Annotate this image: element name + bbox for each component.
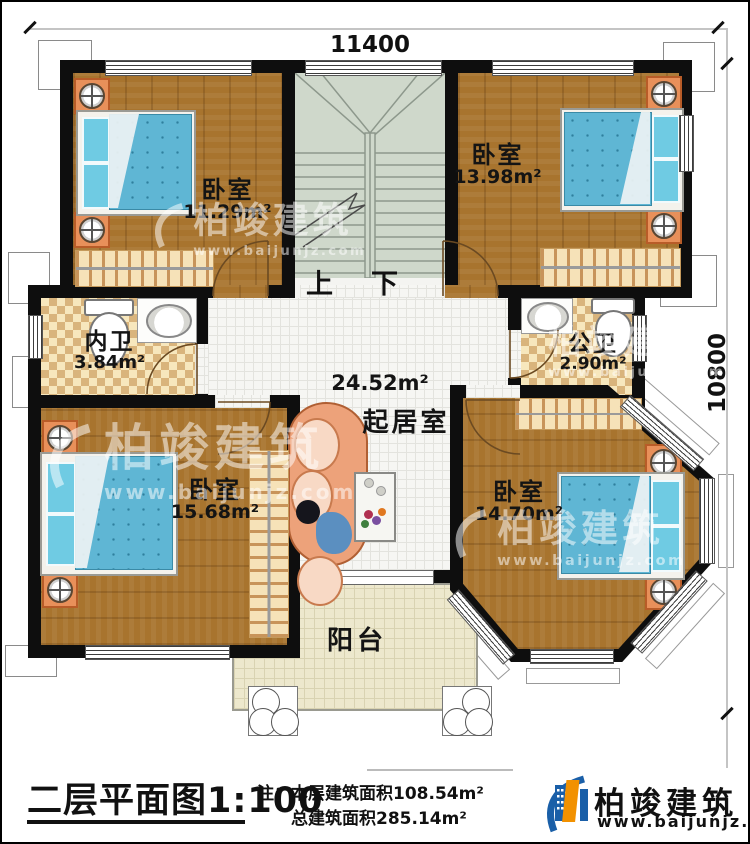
room-name: 卧室	[170, 178, 285, 203]
dimension-width-label: 11400	[328, 32, 412, 58]
coffee-table	[354, 472, 396, 542]
room-name: 卧室	[440, 143, 555, 168]
door-opening	[508, 330, 521, 378]
room-label-bedroom-tl: 卧室 11.29m²	[170, 178, 285, 223]
flower	[372, 516, 381, 525]
balcony-column-pad	[442, 686, 492, 736]
room-name: 公卫	[548, 332, 638, 356]
nightstand	[42, 572, 78, 608]
pillow	[651, 480, 681, 526]
column	[271, 708, 299, 736]
lamp-icon	[47, 425, 73, 451]
person-head	[296, 500, 320, 524]
room-area: 11.29m²	[170, 203, 285, 223]
balcony-label: 阳台	[307, 628, 407, 655]
bed	[560, 108, 684, 212]
dimension-height-label: 10800	[705, 318, 729, 428]
plan-note: 注：本层建筑面积108.54m² 总建筑面积285.14m²	[257, 782, 484, 831]
balcony-column-pad	[248, 686, 298, 736]
room-label-bedroom-br: 卧室 14.70m²	[460, 480, 578, 525]
nightstand	[74, 78, 110, 114]
closet	[75, 250, 214, 287]
room-area: 14.70m²	[460, 505, 578, 525]
door-opening	[213, 285, 268, 298]
note-line2: 总建筑面积285.14m²	[291, 809, 467, 829]
company-logo-icon	[538, 775, 590, 835]
dimension-line-top	[30, 28, 728, 30]
window	[28, 315, 43, 359]
closet	[540, 248, 681, 287]
window	[305, 60, 442, 76]
room-area: 13.98m²	[440, 168, 555, 188]
nightstand	[42, 420, 78, 456]
window	[105, 60, 252, 76]
window	[85, 645, 230, 660]
nightstand	[646, 76, 682, 112]
room-area: 2.90m²	[548, 356, 638, 374]
sofa-cushion	[294, 418, 340, 472]
living-area-label: 24.52m²	[320, 372, 440, 394]
room-label-bedroom-tr: 卧室 13.98m²	[440, 143, 555, 188]
lamp-icon	[79, 83, 105, 109]
pillow	[46, 462, 76, 514]
pillow	[82, 117, 110, 163]
sofa-cushion	[297, 556, 343, 606]
pillow	[651, 526, 681, 572]
window-sill	[526, 668, 620, 684]
note-label: 注：	[257, 784, 291, 804]
step-line	[367, 769, 513, 771]
room-name: 卧室	[460, 480, 578, 505]
note-line1: 本层建筑面积108.54m²	[291, 784, 484, 804]
window	[679, 115, 694, 172]
plan-title-text: 二层平面图	[27, 781, 207, 821]
room-area: 3.84m²	[62, 354, 157, 373]
company-website: www.baijunjz.com	[597, 812, 750, 831]
lamp-icon	[651, 81, 677, 107]
room-label-bath-inner: 内卫 3.84m²	[62, 330, 157, 373]
balcony-slider-door	[330, 570, 434, 585]
room-label-bedroom-bl: 卧室 15.68m²	[156, 478, 274, 523]
window	[492, 60, 634, 76]
column	[465, 708, 493, 736]
table-item	[376, 486, 386, 496]
sink	[527, 302, 569, 332]
bay-window	[530, 649, 614, 664]
lamp-icon	[47, 577, 73, 603]
door-opening	[443, 285, 498, 298]
living-name-label: 起居室	[346, 410, 466, 437]
bay-window	[699, 478, 715, 564]
nightstand	[74, 212, 110, 248]
title-underline	[27, 820, 245, 824]
person-body	[316, 512, 352, 554]
pillow	[46, 514, 76, 566]
room-name: 内卫	[62, 330, 157, 354]
room-name: 卧室	[156, 478, 274, 503]
room-label-bath-public: 公卫 2.90m²	[548, 332, 638, 374]
lamp-icon	[79, 217, 105, 243]
flower-leaf	[361, 520, 369, 528]
pillow	[82, 163, 110, 209]
door-opening	[466, 385, 520, 398]
lamp-icon	[651, 213, 677, 239]
nightstand	[646, 208, 682, 244]
pillow	[652, 115, 680, 159]
door-opening	[195, 344, 208, 394]
stairs-up-label: 上	[306, 262, 333, 301]
stairs-down-label: 下	[371, 262, 398, 301]
table-item	[364, 478, 374, 488]
pillow	[652, 159, 680, 203]
flower	[378, 508, 386, 516]
room-area: 15.68m²	[156, 503, 274, 523]
staircase	[295, 73, 445, 278]
door-opening	[215, 395, 270, 408]
floor-plan-page: 11400 10800	[0, 0, 750, 844]
